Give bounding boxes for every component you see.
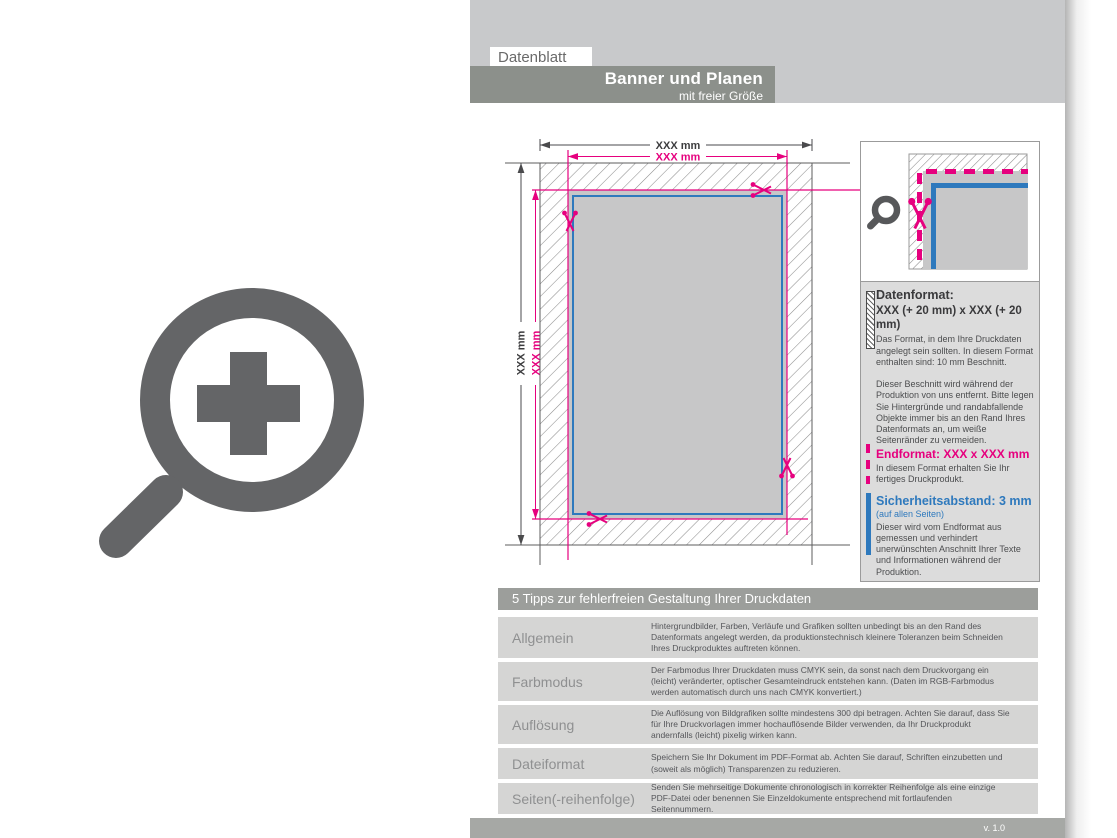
arrow-down <box>532 509 539 519</box>
table-row: Farbmodus Der Farbmodus Ihrer Druckdaten… <box>498 662 1038 701</box>
arrow-up <box>518 163 525 173</box>
row-text: Senden Sie mehrseitige Dokumente chronol… <box>651 782 1013 815</box>
row-label: Seiten(-reihenfolge) <box>498 791 651 807</box>
arrow-right <box>802 142 812 149</box>
dim-label-datenformat-height: XXX mm <box>516 330 528 375</box>
sicherheitsabstand-heading: Sicherheitsabstand: 3 mm <box>876 495 1038 509</box>
datenformat-heading: Datenformat: <box>876 289 1038 303</box>
row-label: Allgemein <box>498 630 651 646</box>
datenformat-desc2: Dieser Beschnitt wird während der Produk… <box>876 379 1038 447</box>
datenformat-section: Datenformat: XXX (+ 20 mm) x XXX (+ 20 m… <box>876 289 1038 447</box>
page-shadow <box>1065 0 1091 838</box>
table-row: Allgemein Hintergrundbilder, Farben, Ver… <box>498 617 1038 658</box>
format-info-panel: Datenformat: XXX (+ 20 mm) x XXX (+ 20 m… <box>860 281 1040 582</box>
datenformat-desc: Das Format, in dem Ihre Druckdaten angel… <box>876 334 1038 368</box>
safety-legend-marker <box>866 493 871 555</box>
sicherheitsabstand-section: Sicherheitsabstand: 3 mm (auf allen Seit… <box>876 495 1038 578</box>
arrow-down <box>518 535 525 545</box>
zoom-plus-icon <box>80 265 400 585</box>
table-row: Dateiformat Speichern Sie Ihr Dokument i… <box>498 748 1038 779</box>
zoom-plus-icon <box>871 199 898 226</box>
footer-bar: v. 1.0 <box>470 818 1065 838</box>
row-label: Auflösung <box>498 717 651 733</box>
dim-label-datenformat-width: XXX mm <box>656 140 701 152</box>
row-text: Hintergrundbilder, Farben, Verläufe und … <box>651 621 1013 654</box>
datenformat-value: XXX (+ 20 mm) x XXX (+ 20 mm) <box>876 305 1038 333</box>
row-label: Dateiformat <box>498 756 651 772</box>
hatch-legend-marker <box>866 291 875 349</box>
arrow-left <box>568 153 578 160</box>
endformat-section: Endformat: XXX x XXX mm In diesem Format… <box>876 448 1038 486</box>
page-subtitle: mit freier Größe <box>470 89 763 103</box>
endformat-desc: In diesem Format erhalten Sie Ihr fertig… <box>876 463 1038 486</box>
endformat-legend-marker <box>866 444 870 484</box>
arrow-left <box>540 142 550 149</box>
tips-table-title: 5 Tipps zur fehlerfreien Gestaltung Ihre… <box>498 588 1038 610</box>
row-text: Der Farbmodus Ihrer Druckdaten muss CMYK… <box>651 665 1013 698</box>
print-format-diagram: XXX mm XXX mm XXX mm XXX mm <box>490 130 870 580</box>
sicherheitsabstand-note: (auf allen Seiten) <box>876 510 1038 520</box>
row-label: Farbmodus <box>498 674 651 690</box>
page-title: Banner und Planen <box>470 69 763 89</box>
corner-detail-drawing <box>861 142 1039 281</box>
table-row: Auflösung Die Auflösung von Bildgrafiken… <box>498 705 1038 744</box>
tips-table: 5 Tipps zur fehlerfreien Gestaltung Ihre… <box>498 588 1038 814</box>
sicherheitsabstand-desc: Dieser wird vom Endformat aus gemessen u… <box>876 522 1038 578</box>
arrow-right <box>777 153 787 160</box>
product-title-bar: Banner und Planen mit freier Größe <box>470 66 775 103</box>
version-label: v. 1.0 <box>984 823 1005 833</box>
row-text: Die Auflösung von Bildgrafiken sollte mi… <box>651 708 1013 741</box>
endformat-area <box>568 190 787 519</box>
datenblatt-label: Datenblatt <box>490 47 592 68</box>
arrow-up <box>532 190 539 200</box>
dim-label-endformat-height: XXX mm <box>531 330 543 375</box>
row-text: Speichern Sie Ihr Dokument im PDF-Format… <box>651 752 1013 774</box>
dim-label-endformat-width: XXX mm <box>656 152 701 164</box>
datasheet-page: Datenblatt Banner und Planen mit freier … <box>0 0 1117 838</box>
endformat-heading: Endformat: XXX x XXX mm <box>876 448 1038 461</box>
table-row: Seiten(-reihenfolge) Senden Sie mehrseit… <box>498 783 1038 814</box>
zoom-detail-panel <box>860 141 1040 282</box>
